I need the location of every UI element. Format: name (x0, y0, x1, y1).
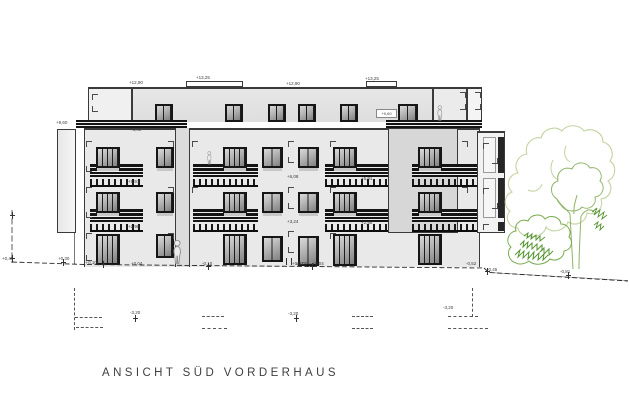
building-block-roof-box-2 (366, 81, 397, 87)
tree-small-foliage-scribble (592, 208, 607, 230)
elevation-label: +5,91 (361, 176, 372, 181)
dimension-mark (475, 104, 481, 110)
basement-dashed-line (448, 328, 488, 329)
dimension-mark (86, 212, 92, 218)
basement-dashed-line (75, 317, 102, 318)
window (96, 234, 120, 265)
building-block-attic-left (88, 87, 132, 122)
elevation-label: -0,10 (202, 261, 212, 266)
window (418, 234, 442, 265)
elevation-label: +0,02 (292, 261, 303, 266)
dimension-mark (483, 188, 489, 194)
elevation-label: +5,91 (128, 179, 139, 184)
elevation-label: +12,90 (129, 80, 143, 85)
survey-tick (286, 258, 287, 265)
elevation-label: +2,98 (361, 220, 372, 225)
window (156, 147, 174, 168)
dimension-mark (330, 141, 336, 147)
basement-dashed-line (448, 316, 478, 317)
basement-dashed-line (76, 327, 103, 328)
right-wing-window (498, 137, 504, 173)
building-block-roof-box-1 (186, 81, 243, 87)
dimension-mark (330, 187, 336, 193)
elevation-label: -0,45 (487, 267, 497, 272)
dimension-mark (475, 92, 481, 98)
dimension-mark (288, 141, 294, 147)
building-block-left-wing (57, 129, 76, 233)
window (156, 192, 174, 213)
window (262, 236, 283, 262)
survey-tick (296, 315, 297, 322)
tree-large-outline-icon (505, 126, 614, 237)
elevation-label: +8,80 (130, 127, 141, 132)
elevation-label: +2,98 (128, 224, 139, 229)
window (268, 104, 286, 122)
basement-dashed-line (352, 316, 373, 317)
dimension-mark (462, 141, 468, 147)
elevation-drawing: +9,60+12,90+13,25+12,90+13,25+9,60+8,80+… (0, 0, 629, 420)
basement-dashed-line (352, 328, 373, 329)
elevation-label: +13,25 (196, 75, 210, 80)
dimension-mark (492, 158, 498, 164)
building-block-left-wing-pier (74, 233, 75, 264)
dimension-mark (330, 233, 336, 239)
window (398, 104, 418, 122)
elevation-label: +0,30 (58, 256, 69, 261)
basement-dashed-line (202, 328, 227, 329)
dimension-mark (483, 143, 489, 149)
window (418, 192, 442, 213)
dimension-mark (460, 104, 466, 110)
window (333, 147, 357, 168)
basement-dashed-line (202, 316, 224, 317)
dimension-mark (288, 187, 294, 193)
dimension-mark (168, 141, 174, 147)
window (340, 104, 358, 122)
elevation-label: +13,25 (365, 76, 379, 81)
elevation-label: +12,90 (286, 81, 300, 86)
window (333, 192, 357, 213)
building-block-stair-strip (175, 128, 190, 267)
shrub-foliage-scribble (515, 233, 553, 260)
elevation-label: (+0,10) (84, 260, 98, 265)
dimension-mark (92, 94, 98, 100)
dimension-mark (288, 157, 294, 163)
tree-large-inner-lines (528, 146, 570, 191)
dimension-mark (192, 187, 198, 193)
window (262, 147, 283, 168)
dimension-mark (492, 203, 498, 209)
window (96, 147, 120, 168)
elevation-label: +3,24 (287, 219, 298, 224)
shrub-outline-icon (508, 215, 572, 264)
survey-tick (12, 212, 13, 219)
dimension-mark (86, 141, 92, 147)
elevation-label: -0,52 (466, 261, 476, 266)
elevation-label: -3,20 (288, 311, 298, 316)
window (223, 234, 247, 265)
wall-label-plate: +9,60 (376, 109, 397, 118)
window (223, 192, 247, 213)
right-wing-window (498, 222, 504, 231)
dimension-mark (483, 224, 489, 230)
dimension-mark (92, 106, 98, 112)
window (223, 147, 247, 168)
dimension-mark (86, 233, 92, 239)
right-wing-door-outline (483, 178, 496, 218)
elevation-label: -0,81 (560, 269, 570, 274)
dimension-mark (192, 141, 198, 147)
tree-small-icon (551, 163, 603, 269)
basement-dashed-line (74, 288, 75, 330)
dimension-mark (288, 247, 294, 253)
window (262, 192, 283, 213)
window (333, 234, 357, 266)
elevation-label: +6,08 (287, 174, 298, 179)
basement-dashed-line (472, 288, 473, 317)
elevation-label: +0,04 (131, 261, 142, 266)
window (298, 147, 319, 168)
elevation-label: +0,45 (2, 256, 13, 261)
elevation-label: -3,20 (443, 305, 453, 310)
elevation-label: -3,20 (130, 310, 140, 315)
right-wing-window (498, 178, 504, 218)
window (225, 104, 243, 122)
window (96, 192, 120, 213)
dimension-mark (168, 187, 174, 193)
survey-tick (135, 315, 136, 322)
dimension-mark (86, 166, 92, 172)
survey-tick (103, 261, 104, 268)
drawing-title: ANSICHT SÜD VORDERHAUS (102, 367, 339, 379)
dimension-mark (288, 203, 294, 209)
dimension-mark (168, 233, 174, 239)
window (298, 192, 319, 213)
dimension-mark (462, 187, 468, 193)
elevation-label: +9,60 (56, 120, 67, 125)
window (418, 147, 442, 168)
window (298, 104, 316, 122)
dimension-mark (460, 92, 466, 98)
dimension-mark (288, 231, 294, 237)
dimension-mark (86, 187, 92, 193)
window (155, 104, 173, 122)
